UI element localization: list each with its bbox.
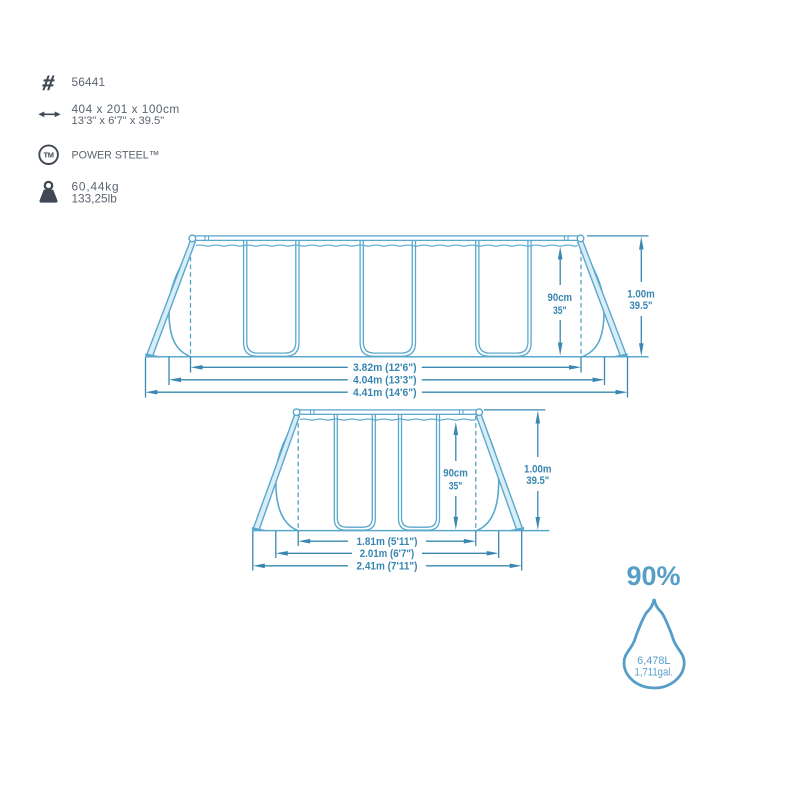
svg-text:1.00m: 1.00m [524, 464, 552, 476]
svg-text:2.01m (6'7"): 2.01m (6'7") [360, 548, 415, 560]
svg-text:90cm: 90cm [443, 468, 468, 480]
svg-text:2.41m (7'11"): 2.41m (7'11") [357, 561, 418, 573]
svg-text:35": 35" [449, 480, 463, 492]
svg-text:90cm: 90cm [548, 292, 573, 304]
svg-text:TM: TM [43, 150, 53, 159]
svg-text:#: # [41, 72, 56, 95]
svg-text:1,711gal.: 1,711gal. [635, 667, 674, 679]
svg-text:56441: 56441 [72, 75, 106, 89]
svg-text:404 x 201 x 100cm: 404 x 201 x 100cm [72, 102, 180, 116]
svg-text:13'3" x 6'7" x 39.5": 13'3" x 6'7" x 39.5" [72, 115, 165, 127]
svg-text:1.81m (5'11"): 1.81m (5'11") [357, 536, 418, 548]
svg-text:1.00m: 1.00m [627, 289, 655, 301]
svg-text:39.5": 39.5" [630, 300, 653, 312]
svg-text:POWER STEEL™: POWER STEEL™ [72, 150, 160, 162]
svg-text:6,478L: 6,478L [637, 655, 670, 667]
svg-text:4.04m (13'3"): 4.04m (13'3") [353, 375, 417, 387]
svg-text:90%: 90% [626, 561, 680, 591]
svg-text:4.41m (14'6"): 4.41m (14'6") [353, 387, 417, 399]
svg-text:35": 35" [553, 305, 567, 317]
svg-text:133,25lb: 133,25lb [72, 192, 118, 206]
svg-text:3.82m (12'6"): 3.82m (12'6") [353, 362, 417, 374]
svg-text:39.5": 39.5" [526, 475, 549, 487]
